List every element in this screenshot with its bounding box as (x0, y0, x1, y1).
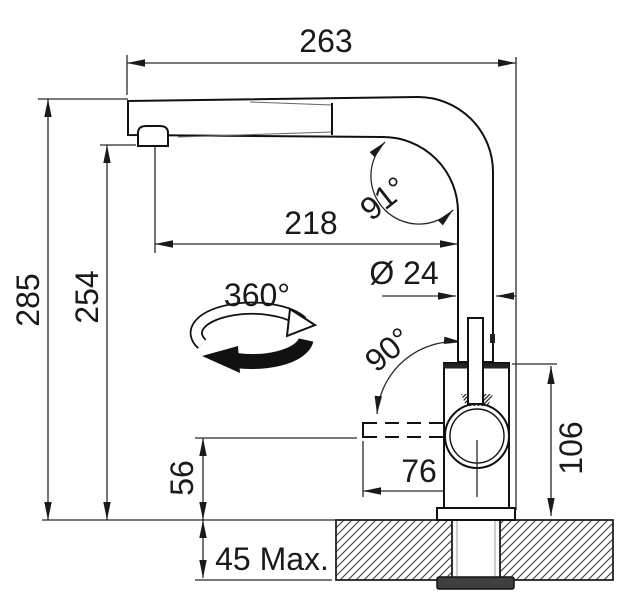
angle-spout-bend-label: 91° (353, 169, 413, 227)
faucet (128, 97, 515, 520)
rotation-ccw-arrowhead (202, 346, 240, 373)
pipe-diameter-label: Ø 24 (369, 255, 438, 291)
drawing-svg: 263 285 254 218 91° 360° Ø 24 90° 106 76… (0, 0, 637, 599)
mounting-nut (437, 577, 514, 589)
handle-lever-dashed (363, 422, 449, 438)
inner-hose-tube (468, 318, 483, 404)
dim-handle-clearance-label: 56 (164, 460, 200, 496)
pipe-detail-stud (490, 334, 495, 343)
counter-slab-right (500, 520, 613, 580)
spray-outlet-nozzle (138, 126, 168, 146)
rotation-360-icon (196, 308, 315, 373)
countertop (336, 520, 613, 589)
swivel-range-label: 360° (224, 277, 290, 313)
dim-handle-reach-label: 76 (401, 453, 437, 489)
rotation-front-ribbon (228, 340, 306, 362)
dim-body-height-label: 106 (553, 421, 589, 474)
dim-deck-thickness-label: 45 Max. (215, 541, 329, 577)
dim-overall-height-label: 285 (10, 273, 46, 326)
dim-outlet-height-label: 254 (69, 270, 105, 323)
counter-slab-left (336, 520, 452, 580)
dim-overall-width-label: 263 (299, 23, 352, 59)
base-plate (437, 508, 515, 520)
threaded-shank (452, 520, 500, 581)
faucet-dimension-drawing: 263 285 254 218 91° 360° Ø 24 90° 106 76… (0, 0, 637, 599)
rotation-cw-arrowhead (287, 309, 315, 336)
angle-handle-swing-label: 90° (358, 320, 418, 379)
dim-spout-reach-label: 218 (284, 205, 337, 241)
